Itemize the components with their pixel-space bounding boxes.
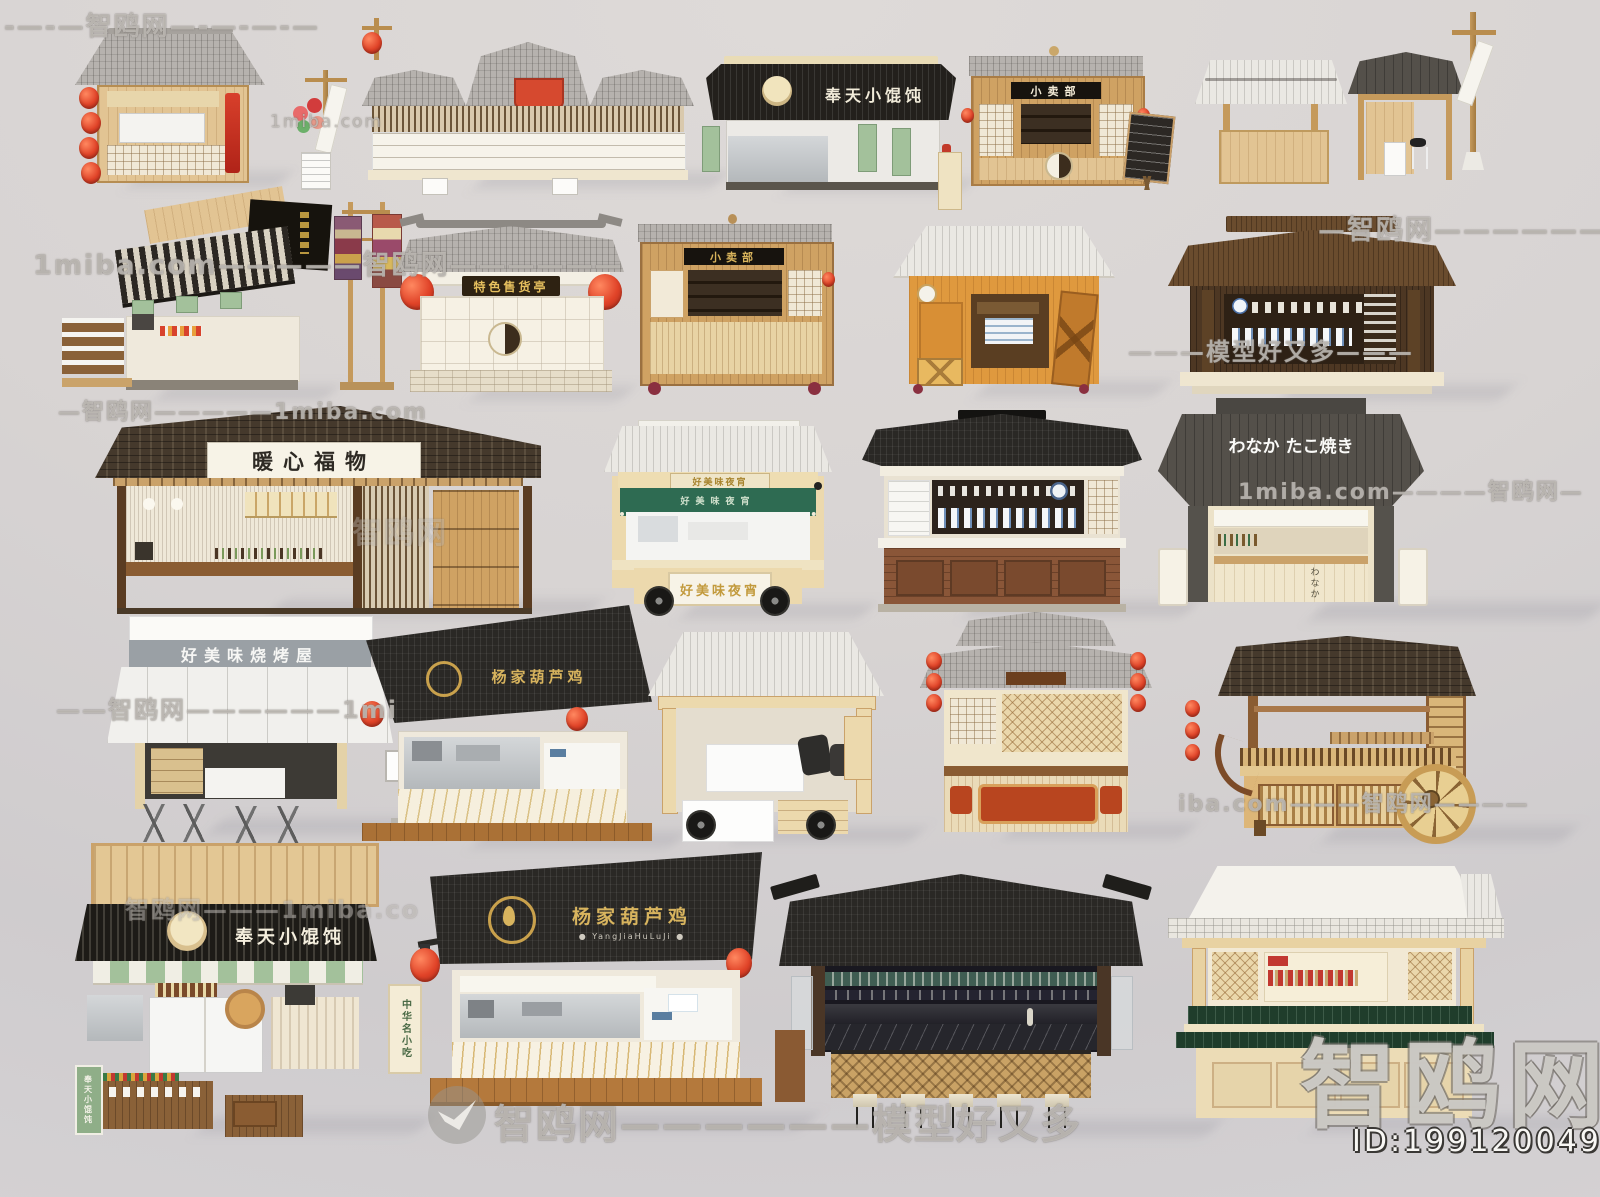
- front-vertical-text: わなか: [1306, 566, 1322, 600]
- post: [1358, 94, 1364, 180]
- parapet: [129, 616, 373, 642]
- post: [117, 486, 126, 608]
- counter: [205, 768, 285, 798]
- base: [368, 170, 688, 180]
- base: [126, 380, 298, 390]
- green-banner-stand: 奉天小馄饨: [75, 1065, 103, 1135]
- base-platform: [1180, 372, 1444, 386]
- sign-label: 奉天小馄饨: [235, 923, 345, 949]
- side-panel: [919, 302, 963, 362]
- shelf-band: [372, 132, 686, 172]
- round-lamp: [171, 498, 183, 510]
- stall-food-truck: 好美味夜宵 好美味夜宵 好美味夜宵: [598, 416, 838, 616]
- watermark-strip: 1miba.com—————智鸥网——————: [33, 243, 624, 282]
- lamp-box: [1158, 548, 1188, 606]
- ball-foot: [808, 382, 821, 395]
- side-wall: [1374, 506, 1394, 602]
- hanging-menus: [245, 492, 337, 518]
- watermark-strip: —智鸥网——————: [1318, 208, 1600, 247]
- yinyang-emblem: [488, 322, 522, 356]
- watermark-strip: —智鸥网—————1miba.com: [58, 394, 428, 426]
- stall-takoyaki: わなか たこ焼き わなか: [1158, 398, 1424, 616]
- stall-wonton-shop-large: 奉天小馄饨 奉天小馄饨: [75, 843, 387, 1133]
- menu-band: [460, 976, 656, 992]
- roof-main: [1180, 866, 1492, 923]
- ball-foot: [1079, 384, 1089, 394]
- green-banner: [176, 296, 198, 313]
- crossbar: [1452, 30, 1496, 35]
- roof-cap: [638, 224, 832, 242]
- green-banner: [220, 292, 242, 309]
- sign-band: 好美味烧烤屋: [129, 640, 371, 667]
- stall-lattice-lanterns: [920, 612, 1152, 836]
- stall-bottle-kiosk: 小卖部: [632, 212, 838, 398]
- carved-panel: [950, 560, 998, 596]
- equipment: [522, 1002, 562, 1016]
- roof: [366, 605, 652, 723]
- equipment: [456, 745, 500, 761]
- black-chair: [797, 734, 833, 777]
- stall-izakaya: 暖心福物: [95, 406, 541, 614]
- stall-huluji-shop: 杨家葫芦鸡 ● YangJiaHuLuJi ●: [430, 852, 762, 1130]
- awning-label: 好美味夜宵: [680, 494, 755, 507]
- roof-finial: [728, 214, 737, 224]
- folding-chair: [141, 804, 167, 842]
- sign-label: 小卖部: [710, 249, 758, 265]
- balloon: [307, 98, 322, 113]
- red-lantern: [926, 652, 942, 670]
- sign-text: 杨家葫芦鸡: [464, 665, 614, 687]
- red-lantern: [81, 112, 101, 134]
- red-lantern: [79, 87, 99, 109]
- green-banner: [892, 128, 911, 176]
- side-stand: [938, 152, 962, 210]
- gull-wing-shape: [438, 1100, 476, 1130]
- shelf-top: [977, 302, 1039, 314]
- eave-beam: [113, 478, 523, 486]
- roof: [862, 414, 1142, 466]
- watermark-site: 1miba.com: [270, 112, 383, 132]
- counter-line: [1214, 556, 1368, 564]
- red-panel-center: [978, 784, 1098, 824]
- red-lantern: [81, 162, 101, 184]
- bar-bottles: [215, 548, 325, 559]
- equipment: [468, 1000, 494, 1018]
- teaware-row: [1252, 302, 1362, 313]
- roof: [604, 426, 832, 472]
- sign-box: 中华名小吃: [388, 984, 422, 1074]
- step-stool: [422, 178, 448, 195]
- front-sign: 好美味夜宵: [668, 572, 772, 606]
- front-panel: [1214, 564, 1368, 602]
- stall-menu-board: [1116, 110, 1178, 194]
- plank-front: [650, 322, 822, 374]
- base-step: [1192, 386, 1432, 394]
- bottle-shelves: [688, 270, 782, 316]
- equipment: [412, 741, 442, 761]
- stall-striped-awning: [62, 198, 330, 400]
- post: [135, 743, 145, 809]
- red-items: [1268, 956, 1288, 966]
- folding-chair: [233, 806, 259, 844]
- roof-right: [590, 70, 694, 106]
- camera-dot: [814, 482, 822, 490]
- white-table: [1384, 142, 1406, 176]
- bowl-logo: [762, 76, 792, 106]
- mid-beam: [944, 766, 1128, 776]
- sink-unit: [87, 995, 143, 1041]
- front-vertical-label: わなか: [1308, 567, 1321, 600]
- kitchen-unit: [638, 516, 678, 542]
- stall-plain-canopy: [1195, 38, 1347, 184]
- backbar: [823, 1004, 1099, 1024]
- a-board: [301, 152, 331, 190]
- roof-left: [362, 70, 466, 106]
- crossbeam: [1254, 706, 1430, 712]
- sign-label: 暖心福物: [252, 446, 376, 476]
- red-lantern: [1185, 744, 1200, 761]
- post: [523, 486, 532, 608]
- red-lantern: [822, 272, 835, 287]
- sign-label: 杨家葫芦鸡: [491, 666, 586, 687]
- bottle-shelves: [1021, 104, 1091, 144]
- gourd-icon: [503, 906, 515, 926]
- watermark-strip: 智鸥网———1miba.co: [125, 890, 420, 925]
- stall-black-roof-chicken: 杨家葫芦鸡: [360, 605, 652, 845]
- base: [726, 182, 938, 190]
- stool-legs: [1412, 147, 1428, 169]
- wheel: [806, 810, 836, 840]
- porcelain-jars: [938, 508, 1078, 528]
- red-panel-side: [950, 786, 972, 814]
- stall-wonton-kiosk: 奉天小馄饨: [700, 48, 962, 190]
- bench: [62, 378, 132, 387]
- beam: [1182, 938, 1486, 948]
- lattice-right: [1088, 480, 1118, 534]
- red-lantern: [1130, 652, 1146, 670]
- roof: [1218, 636, 1476, 696]
- white-banner: [1456, 40, 1494, 106]
- door-panel: [844, 716, 872, 780]
- red-panel-side: [1100, 786, 1122, 814]
- roof-streak: [1205, 78, 1337, 81]
- bar-counter: [126, 562, 353, 576]
- red-lantern: [926, 694, 942, 712]
- green-banner: [858, 124, 877, 172]
- red-lantern: [1130, 694, 1146, 712]
- napkin-stack: [668, 994, 698, 1012]
- roof-text-label: わなか たこ焼き: [1229, 432, 1354, 457]
- red-hanging-sign: [514, 78, 564, 108]
- sign-subtext: ● YangJiaHuLuJi ●: [542, 930, 722, 942]
- sign: 小卖部: [1011, 82, 1101, 99]
- white-cabinet: [888, 480, 930, 536]
- sign-label: 好美味烧烤屋: [181, 642, 319, 666]
- inner-canopy: [1330, 732, 1434, 744]
- round-lamp: [143, 498, 155, 510]
- counter-island: [706, 744, 804, 792]
- red-lantern: [1185, 700, 1200, 717]
- watermark-brand-faint: 智鸥网: [352, 508, 448, 552]
- shadow: [1310, 602, 1600, 620]
- bottle-row: [1218, 534, 1258, 546]
- folding-chair: [181, 804, 207, 842]
- steel-counter: [728, 136, 828, 182]
- window: [650, 270, 684, 318]
- roof: [893, 226, 1115, 278]
- kitchen-counter: [688, 522, 748, 540]
- bowls-row: [95, 1087, 203, 1097]
- window-grid: [950, 698, 996, 744]
- counter-freezer: [119, 113, 205, 143]
- stone-skirt: [878, 604, 1126, 612]
- lattice-right: [788, 270, 822, 316]
- herringbone-front: [831, 1050, 1091, 1098]
- sign-box-label: 中华名小吃: [398, 999, 413, 1059]
- cart-foot: [1254, 820, 1266, 836]
- skewer-display: [155, 983, 217, 997]
- shelf-unit: [151, 748, 203, 794]
- sign-sub-label: ● YangJiaHuLuJi ●: [579, 932, 685, 941]
- stall-tapestry-stand: [328, 202, 406, 398]
- red-lantern: [362, 32, 382, 54]
- wine-bottle: [1027, 1008, 1033, 1026]
- red-lantern: [566, 707, 588, 731]
- crossbar: [362, 26, 392, 30]
- stall-food-cart-open: [648, 632, 884, 840]
- glass-panel: [1111, 976, 1133, 1050]
- watermark-strip: 1miba.com————智鸥网—: [1238, 474, 1584, 506]
- lattice-left: [979, 104, 1013, 156]
- inner-awning: [107, 91, 219, 107]
- front-sign-label: 好美味夜宵: [680, 580, 760, 599]
- sign-label: 杨家葫芦鸡: [572, 902, 692, 929]
- blue-tray: [550, 749, 566, 757]
- gull-logo-watermark: [428, 1086, 486, 1144]
- stall-specialty-kiosk: 特色售货亭: [398, 210, 624, 400]
- folding-chair: [275, 806, 301, 844]
- top-sign: 好美味夜宵: [670, 473, 770, 489]
- side-wall: [1188, 506, 1208, 602]
- carved-panel: [1004, 560, 1052, 596]
- sushi-display: [160, 326, 202, 336]
- post: [811, 966, 825, 1056]
- lattice-right: [1408, 952, 1452, 1000]
- stall-triple-roof-shop: [362, 18, 694, 186]
- ball-foot: [913, 384, 923, 394]
- lantern-string: [1183, 700, 1203, 764]
- roof-finial: [1049, 46, 1059, 56]
- crossbar: [305, 78, 347, 82]
- deck-base: [362, 823, 652, 841]
- blue-plaque: [1050, 482, 1068, 500]
- sign-label: 奉天小馄饨: [825, 82, 925, 106]
- gold-logo-ring: [426, 661, 462, 697]
- green-banner-label: 奉天小馄饨: [84, 1075, 95, 1125]
- bar-stool: [1410, 138, 1426, 147]
- red-cans-row: [1268, 970, 1358, 986]
- sign-text: 奉天小馄饨: [215, 923, 365, 949]
- eave-tip: [1102, 874, 1152, 901]
- crate: [917, 358, 963, 386]
- watermark-strip: ———模型好又多———: [1128, 332, 1414, 367]
- menu-band: [1214, 510, 1368, 527]
- stall-orange-cabin: [893, 210, 1115, 394]
- brick-base: [410, 370, 612, 392]
- sign: 小卖部: [684, 248, 784, 265]
- round-badge: [917, 284, 937, 304]
- sign-text: 杨家葫芦鸡: [542, 902, 722, 928]
- red-banner: [225, 93, 240, 173]
- bar-counter: [819, 1024, 1103, 1050]
- yinyang-emblem: [1045, 152, 1073, 180]
- counter-right: [271, 997, 359, 1069]
- cash-register: [132, 314, 154, 330]
- ball-foot: [648, 382, 661, 395]
- roof-upper: [956, 612, 1116, 646]
- roof: [1195, 60, 1347, 104]
- coffee-machine: [285, 985, 315, 1005]
- stall-banner-pole: [1438, 10, 1513, 174]
- step-stool: [552, 178, 578, 195]
- lattice-left: [1212, 952, 1258, 1000]
- red-lantern: [1185, 722, 1200, 739]
- watermark-bottom-band: 智鸥网——————模型好又多: [494, 1092, 1082, 1150]
- wave-panel: [452, 1042, 740, 1078]
- post: [1097, 966, 1111, 1056]
- green-banner: [702, 126, 720, 172]
- watermark-strip: -—-—智鸥网—-—-—-—: [4, 6, 320, 43]
- sign: 暖心福物: [207, 442, 421, 480]
- lattice-band: [1002, 694, 1122, 752]
- blue-tray: [652, 1012, 672, 1020]
- counter-band: [1240, 748, 1456, 766]
- sign-text: 奉天小馄饨: [800, 82, 950, 106]
- crates: [233, 1101, 277, 1127]
- model-showcase-image: 奉天小馄饨 小卖部: [0, 0, 1600, 1197]
- roof: [648, 632, 884, 696]
- green-banner-row: [93, 961, 363, 985]
- roof-band: [969, 56, 1143, 76]
- roof: [779, 874, 1143, 966]
- carved-panel: [1058, 560, 1106, 596]
- eave-tip: [770, 874, 820, 901]
- counter-ledge: [878, 538, 1126, 548]
- small-sign: [1006, 672, 1066, 685]
- red-lantern: [961, 108, 974, 123]
- carved-panel: [896, 560, 944, 596]
- red-lantern: [926, 673, 942, 691]
- watermark-strip: ——智鸥网——————1mi: [56, 690, 398, 725]
- plates-table: [62, 318, 124, 374]
- pole-base: [1462, 152, 1484, 170]
- red-lantern: [79, 137, 99, 159]
- counter: [1219, 130, 1329, 184]
- towel-stack: [985, 318, 1033, 344]
- sign-label: 小卖部: [1031, 83, 1082, 99]
- post: [337, 743, 347, 809]
- wheel: [686, 810, 716, 840]
- watermark-strip: iba.com———智鸥网————: [1178, 786, 1530, 818]
- blue-plate: [1232, 298, 1248, 314]
- slat-band: [372, 106, 684, 132]
- roof-text: わなか たこ焼き: [1188, 432, 1394, 456]
- chalkboard: [1123, 112, 1176, 184]
- red-lantern: [1130, 673, 1146, 691]
- wave-panel: [398, 789, 626, 823]
- backbar-shelf: [823, 990, 1099, 1000]
- wheel: [760, 586, 790, 616]
- base: [340, 382, 394, 390]
- backbar-green-shelf: [823, 972, 1099, 986]
- eave-grid: [1168, 918, 1504, 938]
- lattice-front: [107, 145, 225, 175]
- lamp-box: [1398, 548, 1428, 606]
- board-legs: [1124, 176, 1170, 190]
- model-id-text: ID:199120049: [1352, 1124, 1600, 1159]
- stall-porcelain: [862, 410, 1142, 614]
- cash-register: [135, 542, 153, 560]
- top-sign-label: 好美味夜宵: [692, 475, 747, 488]
- wood-board: [225, 989, 265, 1029]
- base-panel: [1212, 1062, 1272, 1108]
- eave-band: [880, 466, 1124, 476]
